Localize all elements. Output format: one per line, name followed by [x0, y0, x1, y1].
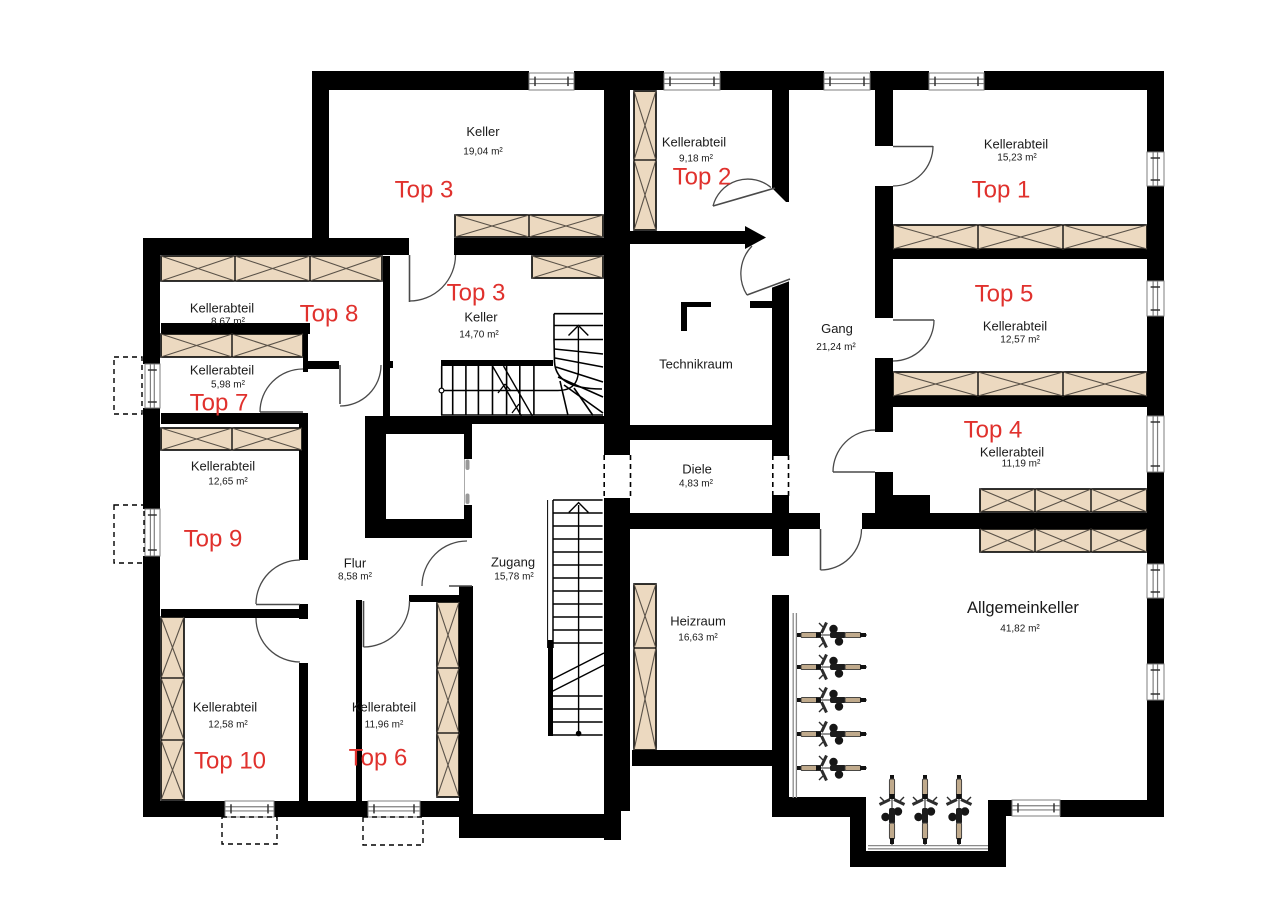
svg-text:12,57 m²: 12,57 m² — [1000, 335, 1040, 346]
svg-text:Kellerabteil: Kellerabteil — [190, 363, 254, 378]
svg-text:Kellerabteil: Kellerabteil — [983, 319, 1047, 334]
svg-text:Gang: Gang — [821, 321, 853, 336]
svg-text:15,23 m²: 15,23 m² — [997, 153, 1037, 164]
svg-text:Top 2: Top 2 — [673, 164, 732, 191]
svg-text:Top 3: Top 3 — [395, 177, 454, 204]
svg-text:Kellerabteil: Kellerabteil — [190, 301, 254, 316]
svg-text:Top 3: Top 3 — [447, 280, 506, 307]
svg-text:Kellerabteil: Kellerabteil — [980, 445, 1044, 460]
svg-text:Keller: Keller — [466, 124, 500, 139]
svg-text:Allgemeinkeller: Allgemeinkeller — [967, 599, 1079, 617]
svg-text:15,78 m²: 15,78 m² — [494, 572, 534, 583]
svg-text:Top 7: Top 7 — [190, 390, 249, 417]
svg-text:16,63 m²: 16,63 m² — [678, 633, 718, 644]
svg-text:14,70 m²: 14,70 m² — [459, 330, 499, 341]
svg-text:Top 5: Top 5 — [975, 281, 1034, 308]
svg-text:Diele: Diele — [682, 462, 712, 477]
svg-text:Zugang: Zugang — [491, 555, 535, 570]
svg-text:8,67 m²: 8,67 m² — [211, 317, 246, 328]
svg-text:Kellerabteil: Kellerabteil — [191, 459, 255, 474]
svg-text:Kellerabteil: Kellerabteil — [662, 135, 726, 150]
svg-text:11,96 m²: 11,96 m² — [365, 720, 404, 731]
svg-text:8,58 m²: 8,58 m² — [338, 572, 373, 583]
svg-text:Top 6: Top 6 — [349, 745, 408, 772]
svg-text:12,65 m²: 12,65 m² — [208, 477, 248, 488]
svg-text:Kellerabteil: Kellerabteil — [193, 700, 257, 715]
svg-text:41,82 m²: 41,82 m² — [1000, 624, 1040, 635]
svg-text:Top 9: Top 9 — [184, 526, 243, 553]
svg-text:Top 4: Top 4 — [964, 417, 1023, 444]
svg-text:Keller: Keller — [464, 310, 498, 325]
svg-text:12,58 m²: 12,58 m² — [208, 720, 248, 731]
svg-text:4,83 m²: 4,83 m² — [679, 479, 714, 490]
svg-text:11,19 m²: 11,19 m² — [1002, 459, 1041, 470]
svg-text:Kellerabteil: Kellerabteil — [984, 137, 1048, 152]
svg-text:21,24 m²: 21,24 m² — [816, 342, 856, 353]
svg-text:Top 8: Top 8 — [300, 301, 359, 328]
svg-text:Top 10: Top 10 — [194, 748, 266, 775]
svg-text:19,04 m²: 19,04 m² — [463, 147, 503, 158]
svg-text:Kellerabteil: Kellerabteil — [352, 700, 416, 715]
svg-text:Top 1: Top 1 — [972, 177, 1031, 204]
svg-text:Flur: Flur — [344, 556, 367, 571]
svg-text:Technikraum: Technikraum — [659, 357, 733, 372]
svg-text:Heizraum: Heizraum — [670, 614, 726, 629]
